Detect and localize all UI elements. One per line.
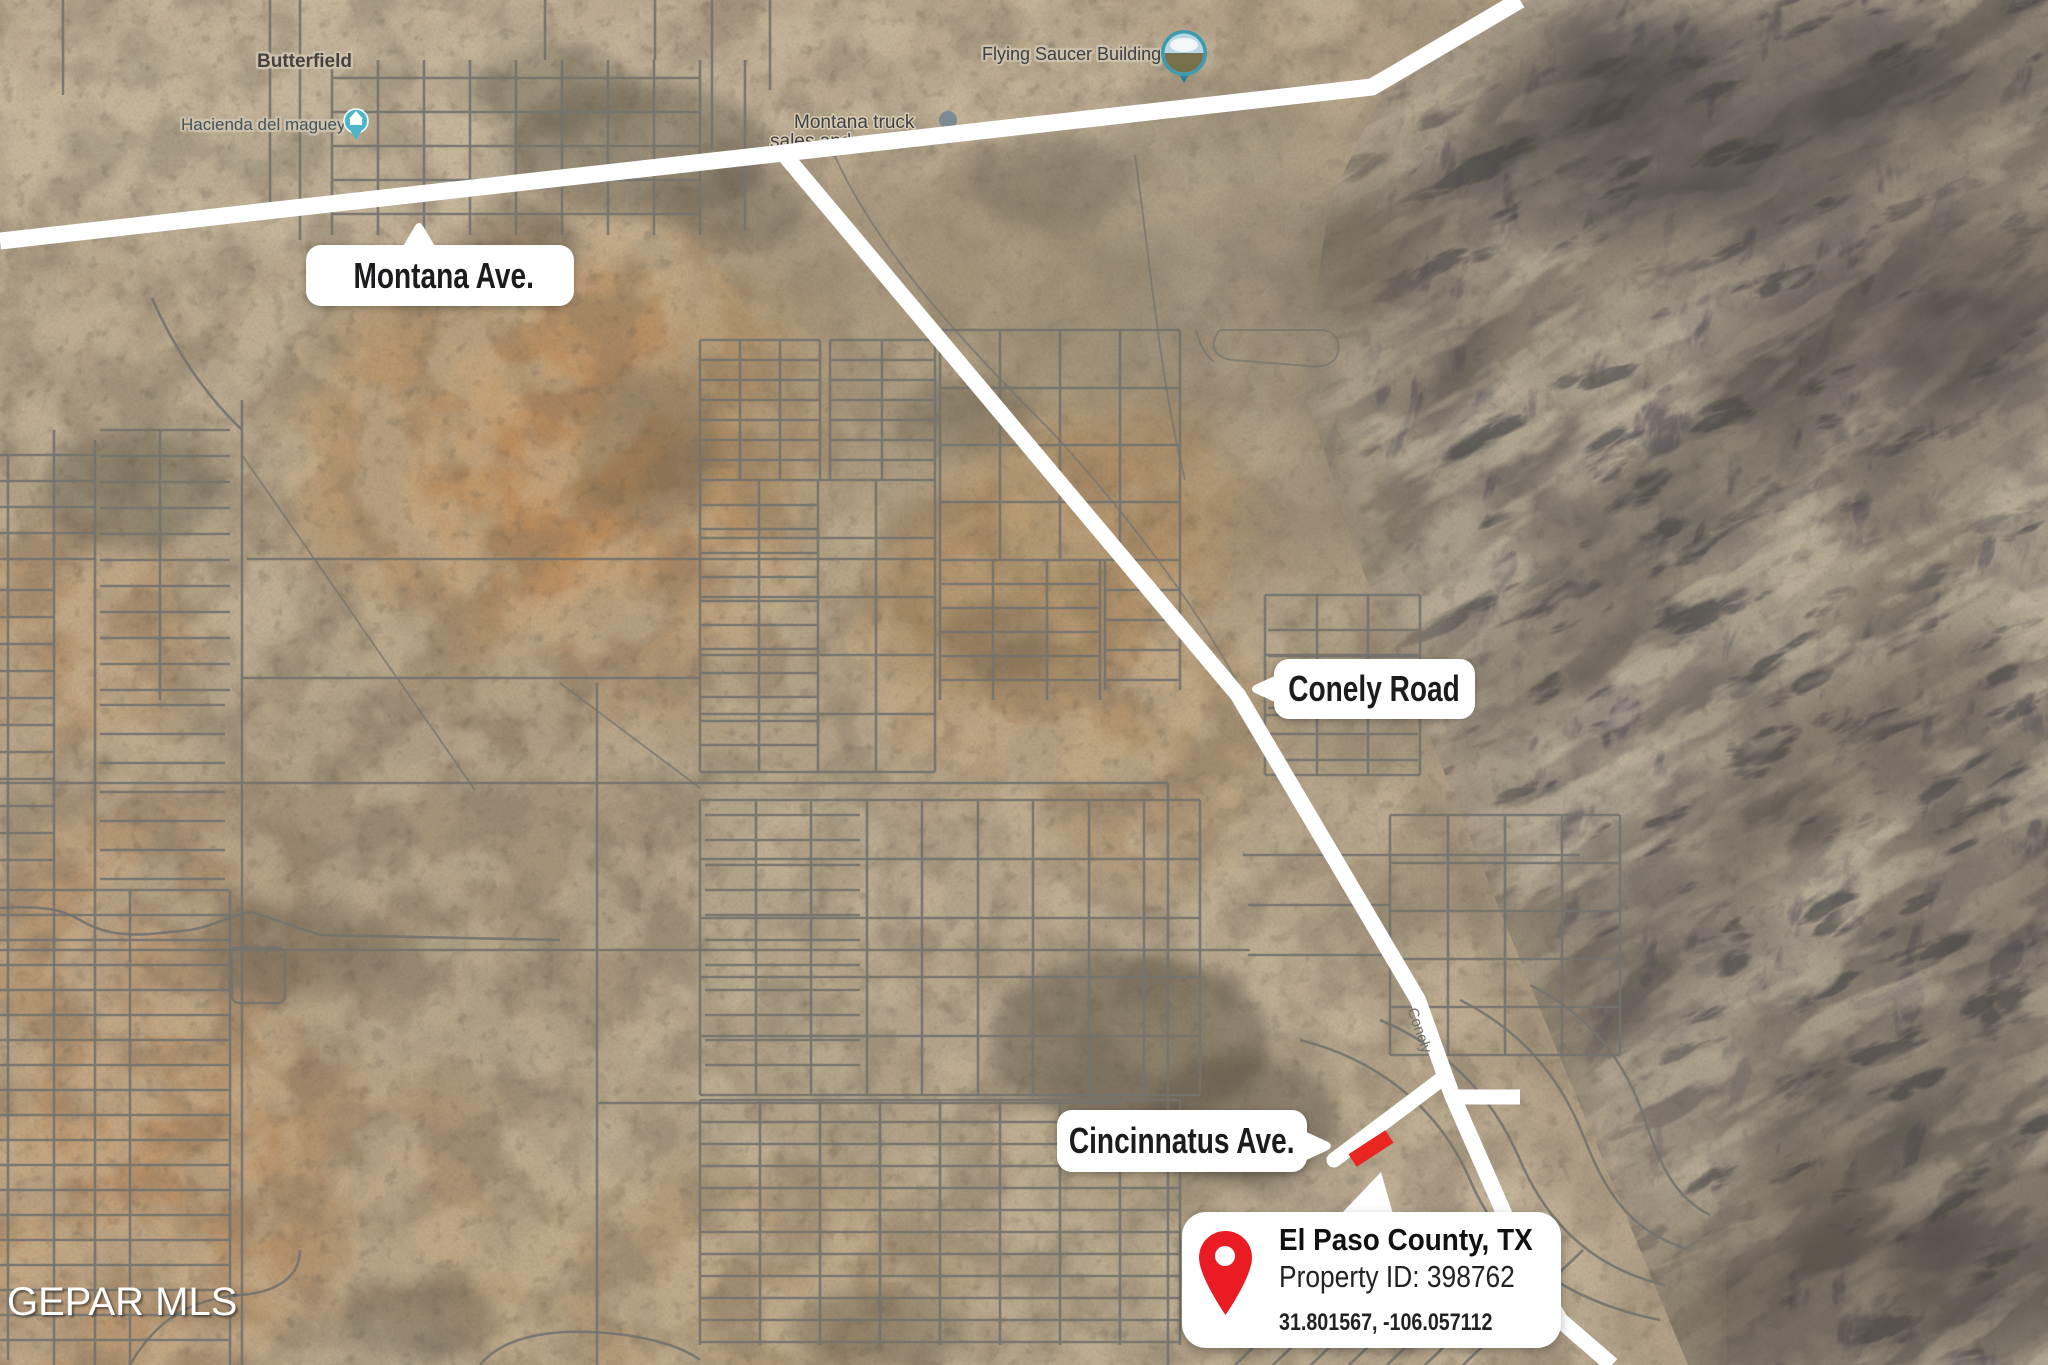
svg-text:Montana truck: Montana truck — [794, 112, 915, 133]
